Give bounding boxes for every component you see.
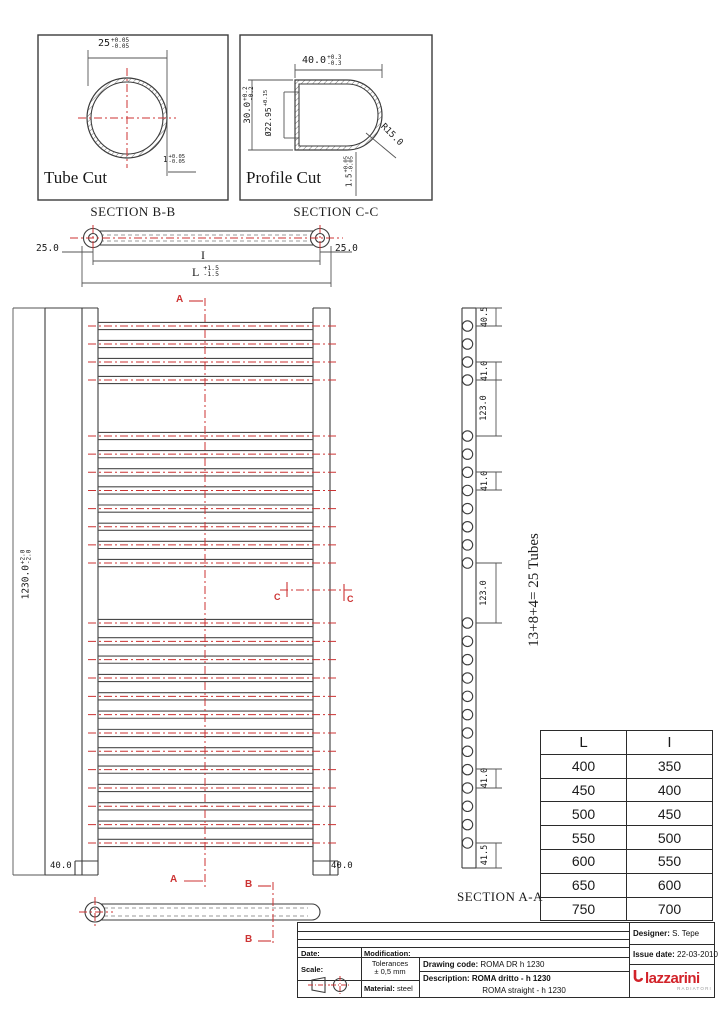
title-block: Date: Modification: Scale: Tolerances ± …	[297, 922, 715, 998]
size-table-cell: 450	[627, 802, 713, 826]
bb-caption: SECTION B-B	[38, 204, 228, 220]
bb-title: Tube Cut	[44, 168, 107, 188]
issue-date: Issue date: 22-03-2010	[633, 950, 718, 959]
cc-wall-dim: 1.5 +0.05-0.05	[345, 150, 356, 194]
size-table-row: 400350	[541, 754, 713, 778]
cc-width-dim: 40.0 +0.3-0.3	[302, 55, 342, 66]
material: Material: steel	[364, 984, 413, 993]
size-table-cell: 650	[541, 873, 627, 897]
size-table-row: 600550	[541, 849, 713, 873]
date-label: Date:	[301, 949, 320, 958]
size-table-header-row: LI	[541, 731, 713, 755]
fv-rail-width-left: 40.0	[50, 861, 72, 871]
fv-height-dim: 1230.0 +2.0-2.0	[21, 538, 34, 612]
aa-dim-3: 41.0	[480, 464, 492, 498]
size-table-cell: 550	[541, 826, 627, 850]
technical-drawing-page: 25 +0.05-0.05 1 +0.05-0.05 Tube Cut SECT…	[0, 0, 720, 1018]
size-table-cell: 700	[627, 897, 713, 921]
tv-inner-length: I	[201, 248, 205, 263]
bottom-view-drawing	[79, 882, 320, 946]
aa-dim-2: 123.0	[479, 391, 491, 425]
size-table-cell: 550	[627, 849, 713, 873]
logo-text: lazzarini	[645, 972, 700, 985]
size-table-row: 750700	[541, 897, 713, 921]
size-table-row: 650600	[541, 873, 713, 897]
lazzarini-flame-icon	[632, 969, 643, 985]
size-table-cell: 500	[627, 826, 713, 850]
size-table-cell: 500	[541, 802, 627, 826]
size-table-cell: 600	[541, 849, 627, 873]
aa-dim-1: 41.0	[480, 354, 492, 388]
section-c-marker-left: C	[274, 592, 281, 602]
front-view-drawing	[13, 298, 352, 890]
section-a-marker-bottom: A	[170, 874, 177, 885]
cc-height-dim: 30.0 +0.2-0.2	[243, 80, 255, 130]
aa-dim-0: 40.5	[480, 300, 492, 334]
bb-diameter-dim: 25 +0.05-0.05	[98, 38, 129, 49]
size-table-row: 550500	[541, 826, 713, 850]
designer: Designer: S. Tepe	[633, 929, 699, 938]
aa-tube-note: 13+8+4= 25 Tubes	[526, 515, 544, 665]
fv-rail-width-right: 40.0	[331, 861, 353, 871]
size-table-cell: 400	[541, 754, 627, 778]
modification-label: Modification:	[364, 949, 411, 958]
lazzarini-logo: lazzarini RADIATORI	[632, 969, 712, 991]
section-b-marker-bottom: B	[245, 934, 252, 945]
projection-symbol-icon	[308, 975, 354, 995]
size-table-cell: 400	[627, 778, 713, 802]
aa-dim-5: 41.0	[480, 761, 492, 795]
ladder-circles	[462, 321, 472, 848]
size-table-header: L	[541, 731, 627, 755]
description: Description: ROMA dritto - h 1230	[423, 974, 551, 983]
front-centerlines	[88, 326, 338, 843]
tv-length-dim: L +1.5-1.5	[192, 265, 219, 280]
section-a-marker-top: A	[176, 294, 183, 305]
description-en: ROMA straight - h 1230	[419, 986, 629, 995]
size-table-cell: 350	[627, 754, 713, 778]
cc-title: Profile Cut	[246, 168, 321, 188]
size-table: LI 4003504504005004505505006005506506007…	[540, 730, 713, 921]
tolerances-value: ± 0,5 mm	[361, 967, 419, 976]
section-b-marker-top: B	[245, 879, 252, 890]
size-table-cell: 450	[541, 778, 627, 802]
drawing-code: Drawing code: ROMA DR h 1230	[423, 960, 544, 969]
size-table-header: I	[627, 731, 713, 755]
cc-inner-diameter-dim: Ø22.95 +0.15	[264, 83, 276, 143]
tv-offset-left: 25.0	[36, 243, 59, 254]
size-table-row: 500450	[541, 802, 713, 826]
tv-offset-right: 25.0	[335, 243, 358, 254]
aa-dim-4: 123.0	[479, 576, 491, 610]
bb-wall-dim: 1 +0.05-0.05	[163, 155, 185, 165]
size-table-cell: 750	[541, 897, 627, 921]
section-c-marker-right: C	[347, 594, 354, 604]
size-table-row: 450400	[541, 778, 713, 802]
scale-label: Scale:	[301, 965, 323, 974]
cc-caption: SECTION C-C	[240, 204, 432, 220]
aa-dim-6: 41.5	[480, 838, 492, 872]
size-table-cell: 600	[627, 873, 713, 897]
size-table-body: 4003504504005004505505006005506506007507…	[541, 754, 713, 921]
